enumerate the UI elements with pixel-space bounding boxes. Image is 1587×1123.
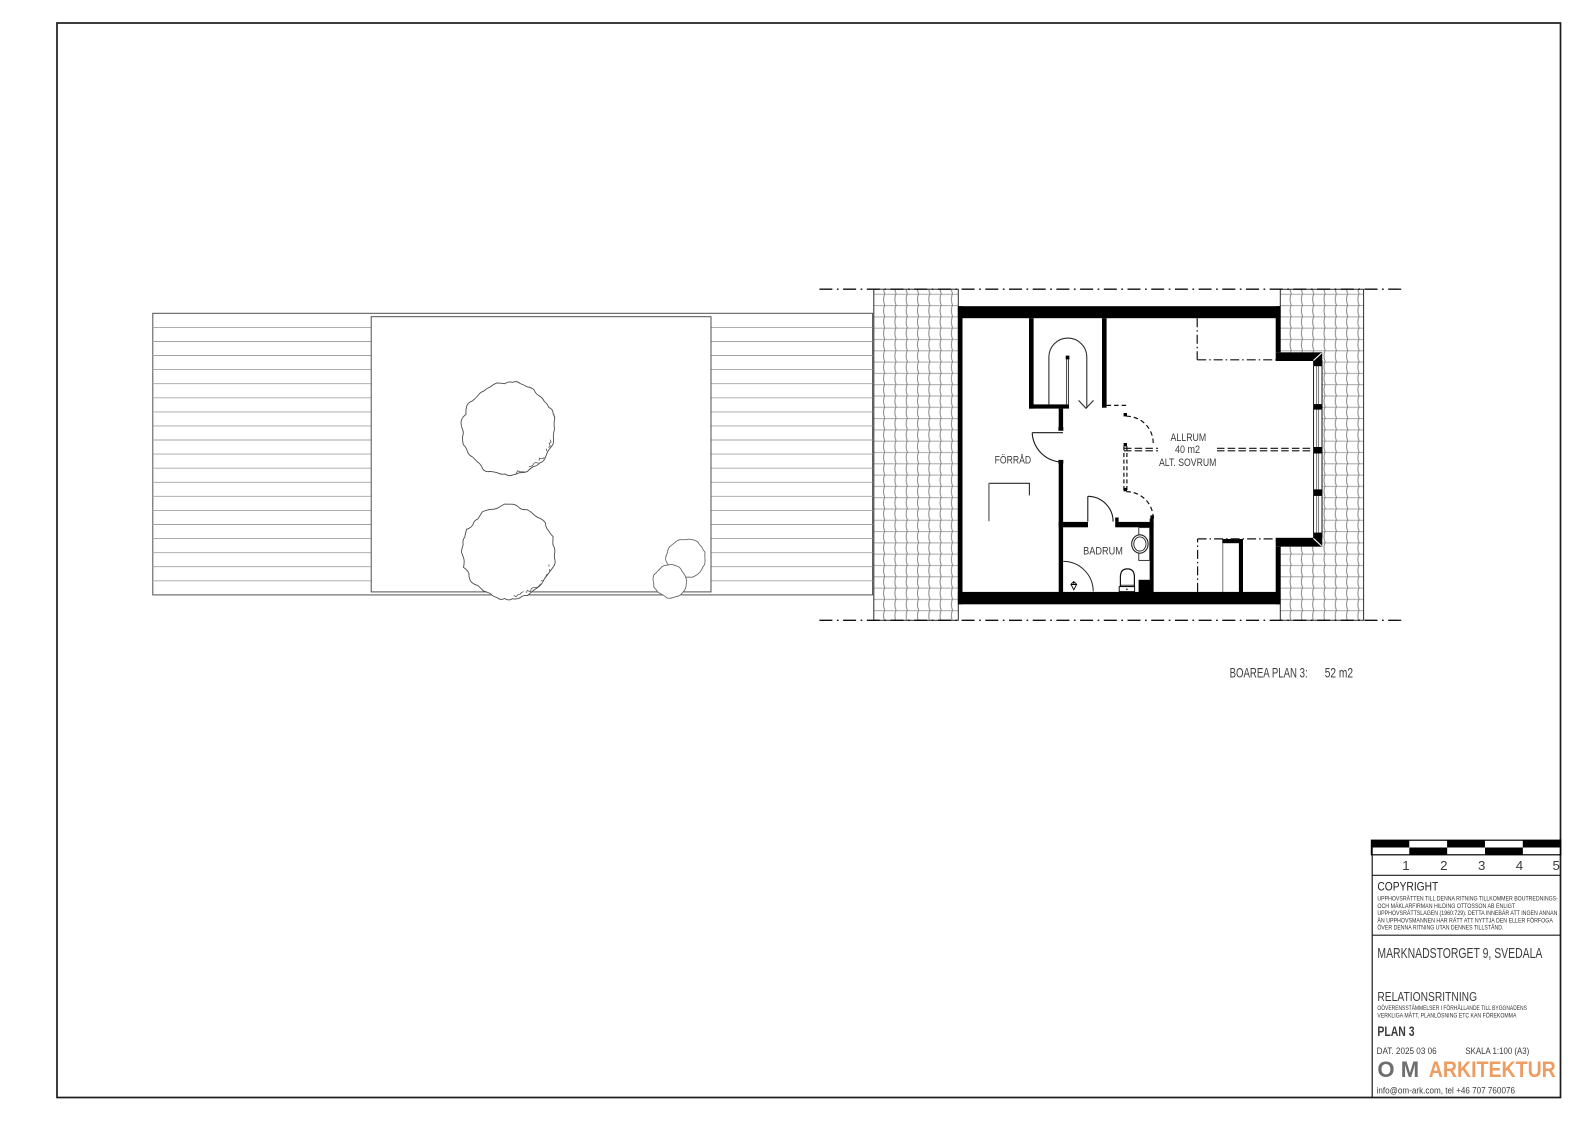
svg-text:MARKNADSTORGET 9, SVEDALA: MARKNADSTORGET 9, SVEDALA [1377, 946, 1542, 962]
svg-text:3: 3 [1478, 858, 1485, 873]
svg-text:UPPHOVSRÄTTSLAGEN (1960:729).: UPPHOVSRÄTTSLAGEN (1960:729). DETTA INNE… [1377, 909, 1557, 917]
svg-text:BOAREA PLAN 3:: BOAREA PLAN 3: [1230, 666, 1308, 681]
svg-text:5: 5 [1552, 858, 1559, 873]
svg-text:1: 1 [1402, 858, 1409, 873]
svg-text:VERKLIGA MÅTT, PLANLÖSNING ETC: VERKLIGA MÅTT, PLANLÖSNING ETC KAN FÖREK… [1377, 1010, 1517, 1019]
svg-text:UPPHOVSRÄTTEN TILL DENNA RITNI: UPPHOVSRÄTTEN TILL DENNA RITNING TILLKOM… [1377, 895, 1558, 903]
svg-text:OÖVERENSSTÄMMELSER I FÖRHÅLLAN: OÖVERENSSTÄMMELSER I FÖRHÅLLANDE TILL BY… [1377, 1003, 1527, 1012]
svg-text:ALT. SOVRUM: ALT. SOVRUM [1159, 457, 1216, 469]
svg-text:COPYRIGHT: COPYRIGHT [1377, 881, 1438, 893]
svg-text:4: 4 [1516, 858, 1523, 873]
svg-text:OCH MÄKLARFIRMAN HILDING OTTOS: OCH MÄKLARFIRMAN HILDING OTTOSSON AB ENL… [1377, 902, 1515, 910]
svg-text:52 m2: 52 m2 [1325, 666, 1353, 681]
svg-text:40 m2: 40 m2 [1175, 444, 1200, 456]
svg-text:FÖRRÅD: FÖRRÅD [995, 453, 1032, 466]
svg-text:O M: O M [1377, 1057, 1419, 1082]
svg-text:DAT. 2025 03 06: DAT. 2025 03 06 [1377, 1046, 1437, 1056]
svg-text:SKALA 1:100 (A3): SKALA 1:100 (A3) [1465, 1046, 1529, 1056]
svg-text:2: 2 [1440, 858, 1447, 873]
svg-text:info@om-ark.com, tel +46 707 7: info@om-ark.com, tel +46 707 760076 [1377, 1085, 1515, 1096]
svg-text:ARKITEKTUR: ARKITEKTUR [1429, 1057, 1556, 1082]
svg-text:PLAN 3: PLAN 3 [1377, 1024, 1414, 1040]
svg-text:ALLRUM: ALLRUM [1171, 432, 1207, 444]
svg-text:ÖVER DENNA RITNING UTAN DENNES: ÖVER DENNA RITNING UTAN DENNES TILLSTÅND… [1377, 923, 1503, 932]
svg-text:ÄN UPPHOVSMANNEN HAR RÄTT ATT: ÄN UPPHOVSMANNEN HAR RÄTT ATT NYTTJA DEN… [1377, 916, 1553, 924]
svg-text:BADRUM: BADRUM [1083, 546, 1123, 558]
svg-text:RELATIONSRITNING: RELATIONSRITNING [1377, 989, 1477, 1004]
